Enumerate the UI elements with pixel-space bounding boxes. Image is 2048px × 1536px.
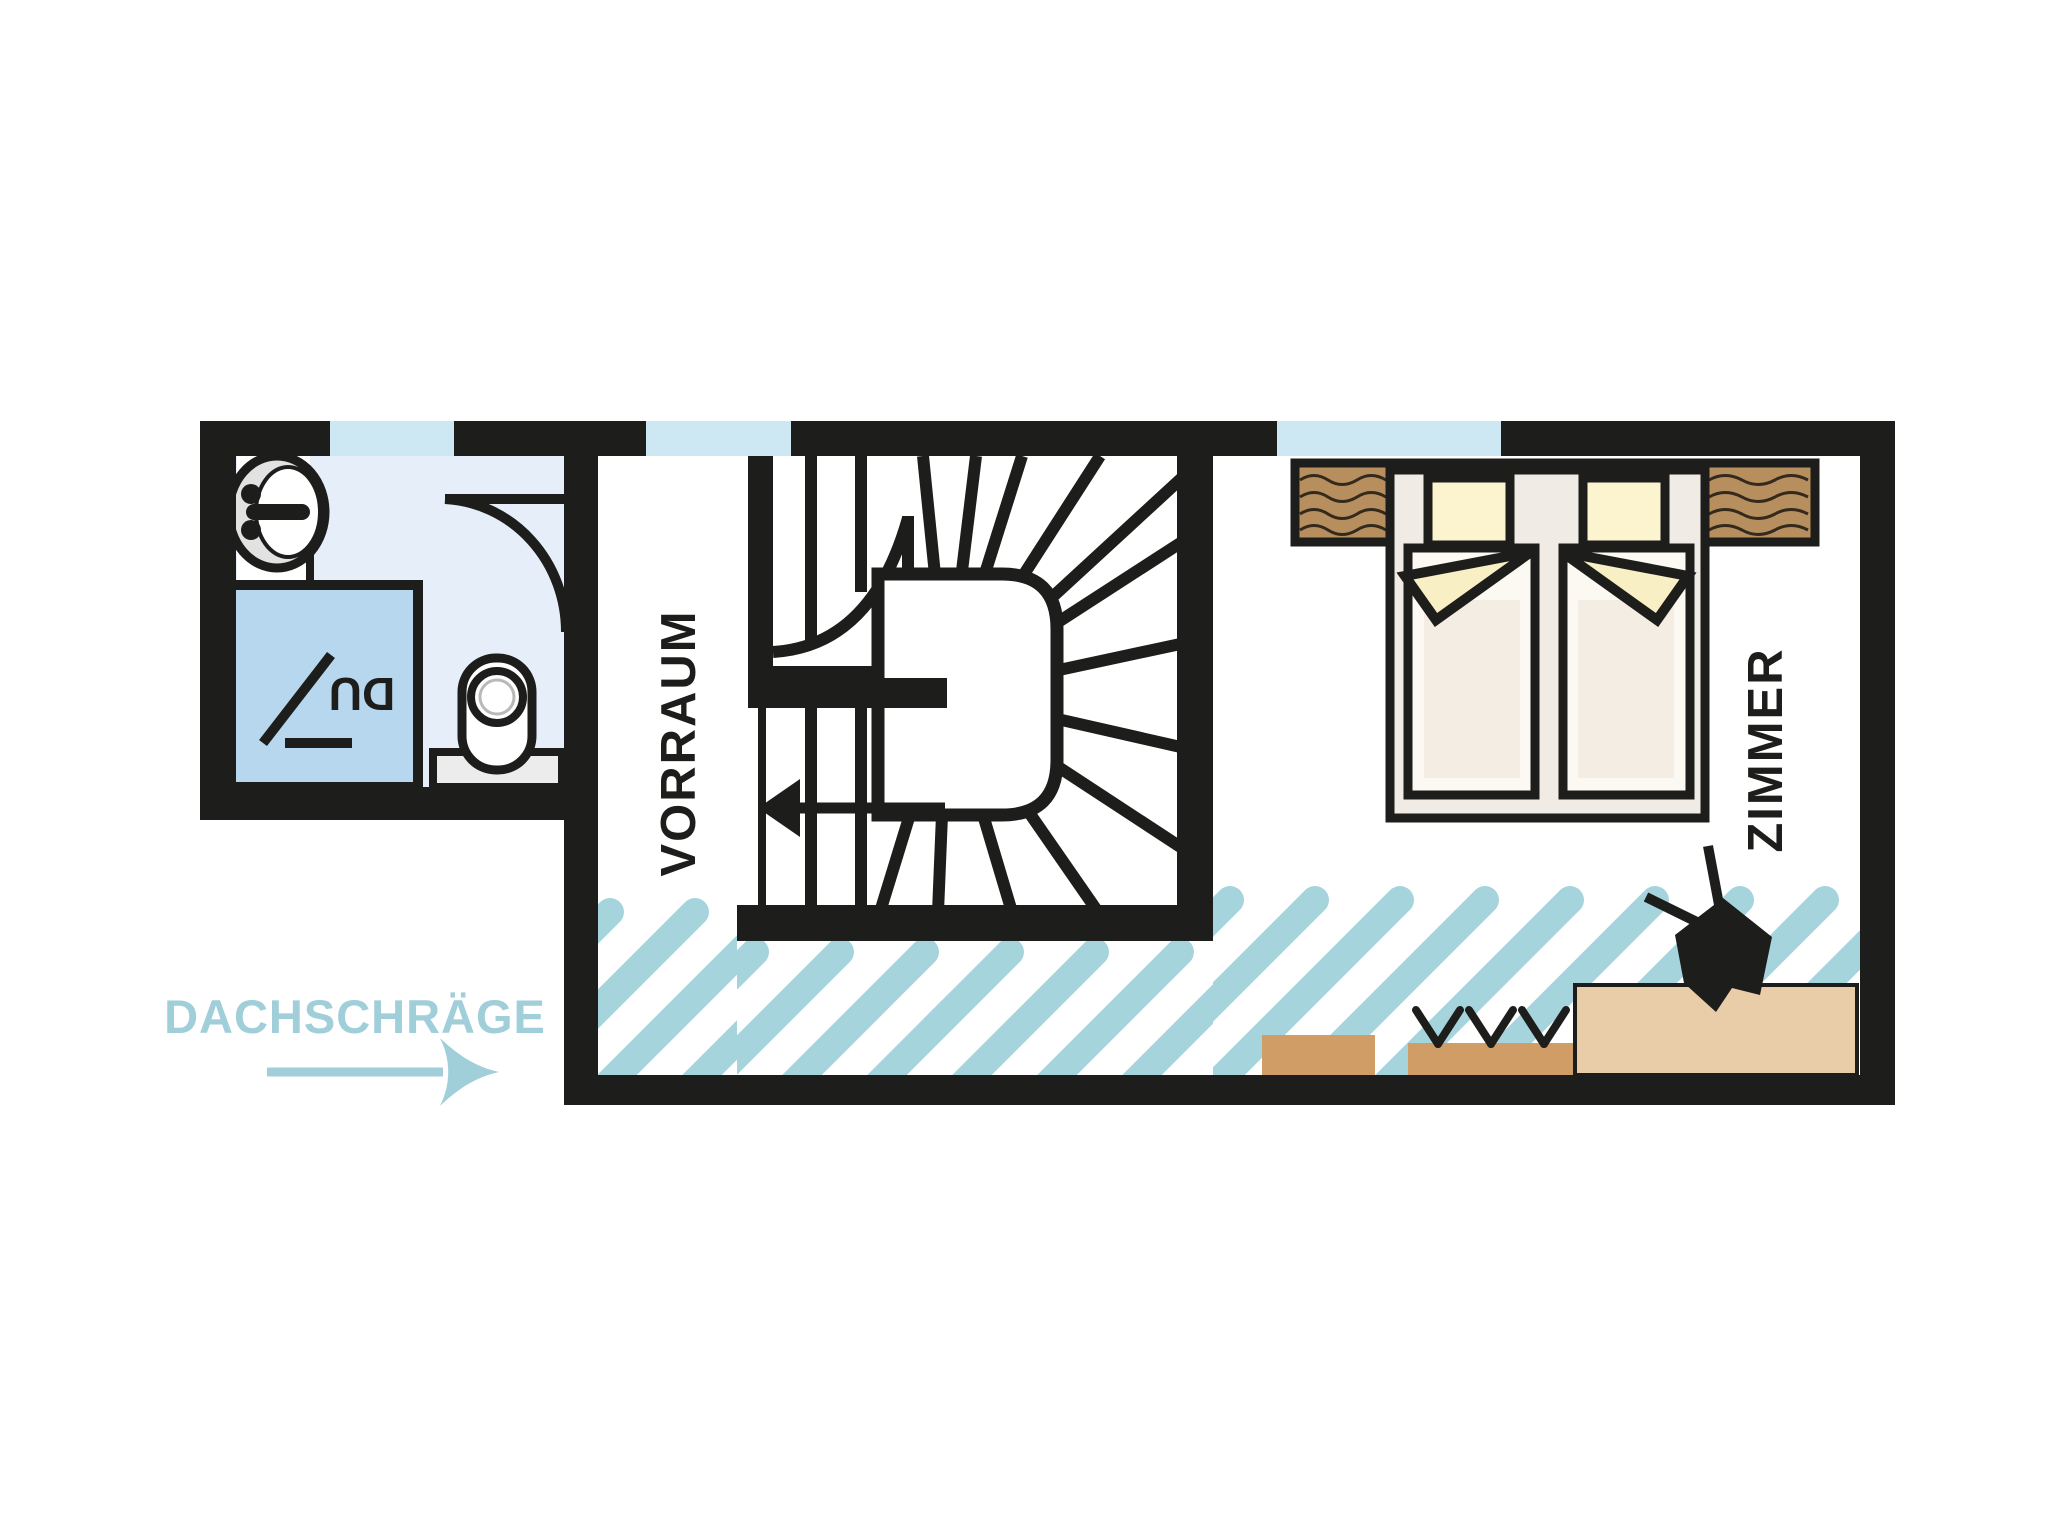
bathroom: DU (220, 440, 580, 800)
cabinet (1262, 1035, 1375, 1075)
window-bathroom (330, 421, 454, 456)
wall-stair-bottom (737, 905, 1213, 941)
wall-stair-right (1177, 456, 1213, 941)
wall-right (1860, 421, 1895, 1105)
bedroom-label: ZIMMER (1739, 647, 1793, 852)
window-bedroom (1277, 421, 1501, 456)
wall-step-left (564, 787, 598, 1105)
wall-stair-left (748, 456, 773, 708)
wall-left (200, 421, 236, 820)
wall-bathroom-divider (564, 456, 598, 820)
roof-slope-arrow-icon (267, 1038, 499, 1106)
window-hallway (646, 421, 791, 456)
pillow-left (1428, 478, 1510, 545)
wall-bathroom-bottom (200, 787, 598, 820)
sink-icon (229, 456, 325, 568)
double-bed (1295, 463, 1815, 818)
shower-label: DU (329, 668, 395, 720)
pillow-right (1583, 478, 1665, 545)
wall-top (200, 421, 1895, 456)
roof-slope-annotation: DACHSCHRÄGE (164, 990, 546, 1106)
wall-bottom (564, 1075, 1895, 1105)
roof-slope-label: DACHSCHRÄGE (164, 990, 546, 1043)
floor-plan: DU (0, 0, 2048, 1536)
hallway-label: VORRAUM (652, 609, 706, 876)
shower-icon: DU (228, 585, 418, 787)
wall-stair-stub (748, 678, 947, 708)
floor-plan-page: DU (0, 0, 2048, 1536)
